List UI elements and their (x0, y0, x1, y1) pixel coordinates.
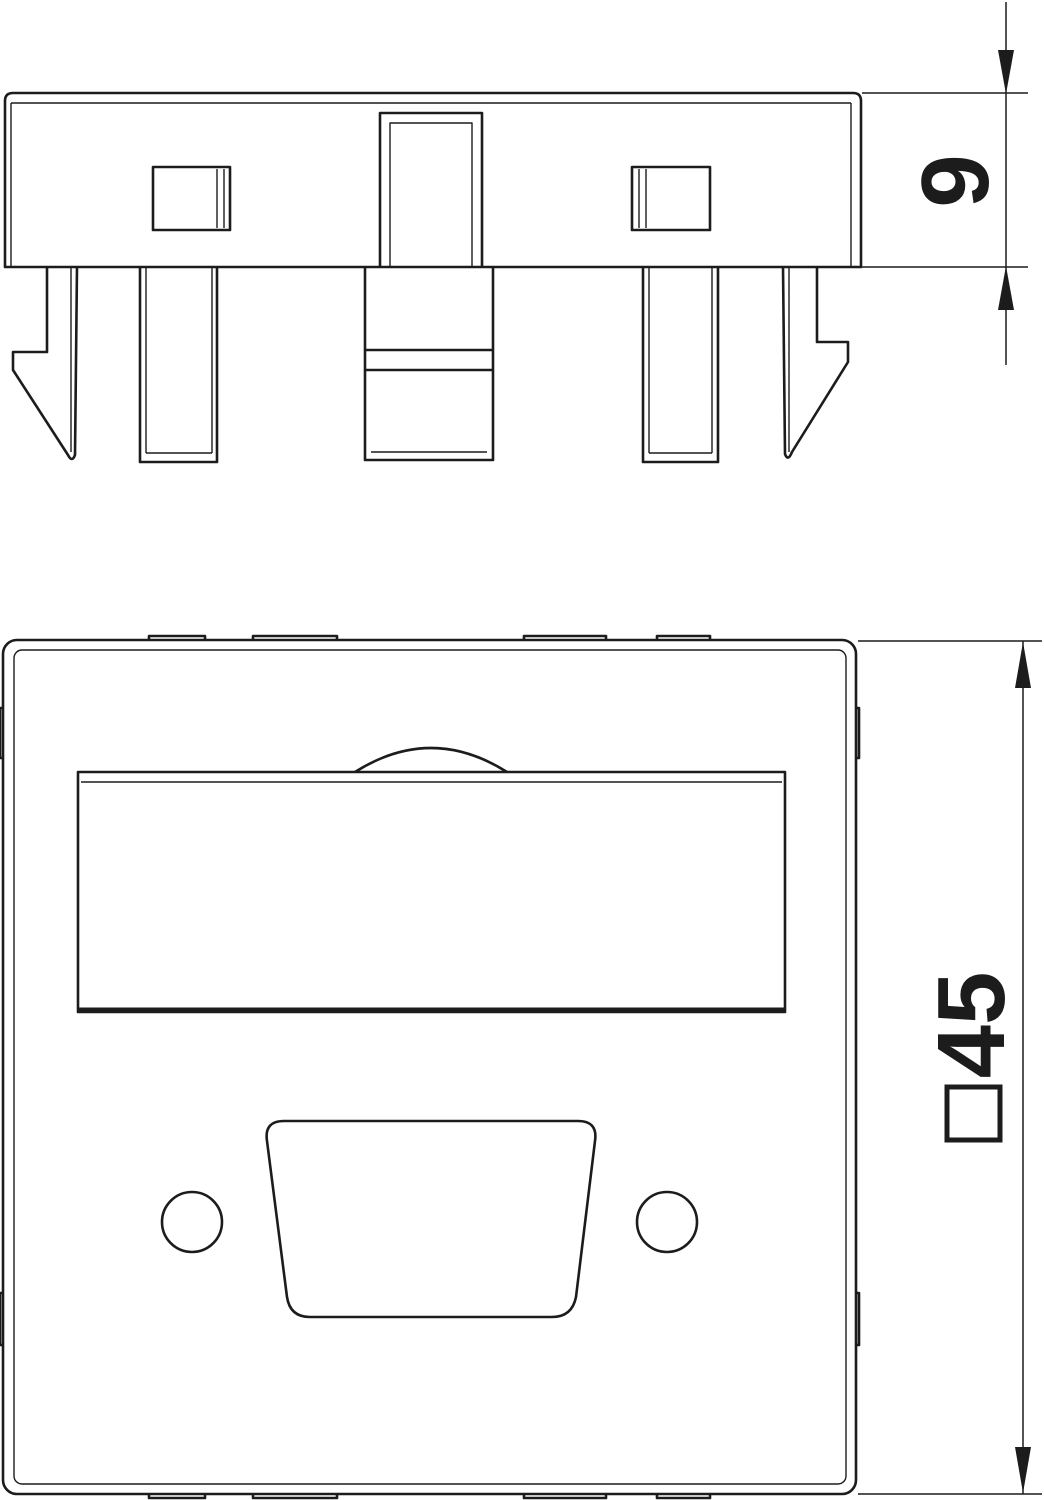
labelling-field (78, 772, 785, 1012)
plate-inner-border (14, 650, 846, 1484)
dimension-45-label: 45 (918, 972, 1025, 1079)
left-latch-window-inner-lines (217, 169, 224, 228)
side-profile-view (5, 93, 861, 462)
left-latch-window (153, 167, 230, 230)
mounting-leg-left-inner-lines (146, 268, 212, 453)
front-face-view (0, 636, 859, 1498)
left-snap-hook (13, 267, 77, 459)
side-body-outline (5, 93, 861, 267)
center-slot-inner-lines (390, 123, 472, 266)
arrow-up-icon (998, 266, 1014, 310)
mounting-leg-left (140, 267, 217, 462)
right-snap-hook (783, 267, 848, 458)
arrow-down-icon (998, 50, 1014, 94)
center-leg-step-lines (365, 350, 493, 370)
dimension-9-label: 9 (902, 154, 1009, 207)
dsub-connector-cutout (267, 1121, 596, 1317)
right-screw-hole (637, 1192, 697, 1252)
cover-plate-drawing: 9 45 (0, 0, 1044, 1500)
arrow-down-icon (1015, 1447, 1031, 1493)
mounting-leg-right-inner-lines (649, 268, 712, 453)
arrow-up-icon (1015, 642, 1031, 688)
side-view-dimension: 9 (862, 2, 1028, 365)
right-latch-window (632, 167, 710, 230)
plate-outline (3, 640, 856, 1494)
center-slot-outline (380, 113, 482, 266)
front-view-dimension: 45 (858, 641, 1042, 1494)
left-screw-hole (162, 1192, 222, 1252)
finger-recess-arc (355, 748, 507, 772)
right-latch-window-inner-lines (639, 169, 646, 228)
mounting-leg-right (643, 267, 718, 462)
center-leg (365, 267, 493, 460)
technical-drawing-page: 9 45 (0, 0, 1044, 1500)
square-symbol-icon (947, 1087, 1000, 1140)
